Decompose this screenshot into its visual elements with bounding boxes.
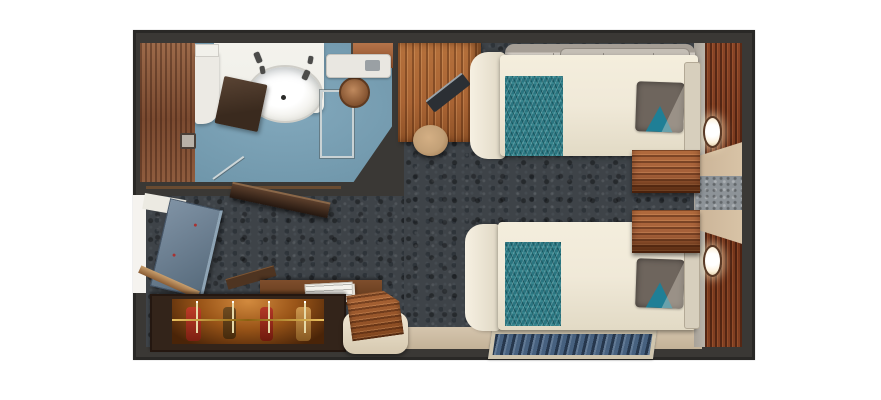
hanger [196, 303, 198, 333]
lower-bed-pillow [635, 258, 685, 309]
door-fitting [194, 223, 198, 227]
entry-doorway-opening [133, 195, 146, 293]
lower-bed-teal-runner [505, 242, 561, 326]
door-fitting [172, 253, 176, 257]
nightstand-upper [632, 150, 700, 193]
hanger [268, 303, 270, 333]
hanging-garment-red [260, 307, 273, 341]
vanity-shelf [195, 44, 219, 57]
lower-bed-headboard [684, 243, 700, 329]
reading-lamp-lower [703, 245, 722, 277]
desk-chair-object [425, 72, 470, 112]
showerhead [339, 77, 370, 108]
stool [413, 125, 448, 156]
bathroom-left-wood-wall [140, 43, 195, 182]
hanger [232, 303, 234, 333]
upper-bed-pillow [635, 81, 685, 133]
toilet-cistern [365, 60, 380, 71]
bathroom-wall-handle [180, 133, 196, 149]
floorplan-stage [0, 0, 881, 400]
floor-rug [488, 330, 657, 359]
lower-bed-footboard [465, 224, 501, 331]
upper-bed-headboard [684, 62, 701, 155]
toilet [326, 54, 391, 78]
hanger [304, 303, 306, 333]
sink-drain [281, 95, 286, 100]
reading-lamp-upper [703, 116, 722, 148]
stateroom-walls [133, 30, 755, 360]
upper-bed-teal-runner [505, 76, 563, 156]
wardrobe [150, 294, 346, 352]
hanging-garment-dark [223, 307, 236, 339]
nightstand-lower [632, 210, 700, 253]
wardrobe-interior [172, 299, 324, 344]
upper-bed [500, 55, 698, 156]
hanging-garment-red [186, 307, 201, 341]
closet-rod [172, 319, 324, 321]
